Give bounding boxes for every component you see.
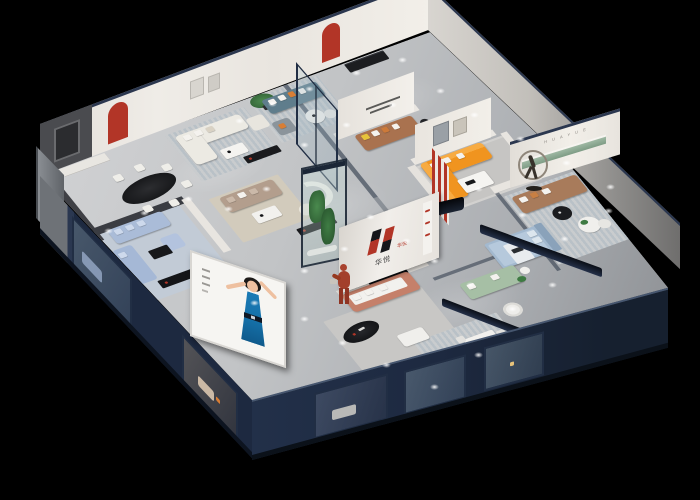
model-arm — [225, 281, 246, 289]
mannequin-leg — [345, 288, 349, 304]
door-mullion — [315, 86, 317, 166]
wall-frame — [208, 72, 220, 93]
ad-text-line — [202, 289, 208, 293]
wall-art — [453, 116, 467, 137]
window-sofa-hint — [332, 404, 356, 420]
mannequin-tray — [330, 279, 337, 284]
case-plant — [321, 207, 335, 246]
ad-text-line — [202, 275, 210, 280]
dining-chair — [112, 173, 125, 182]
brand-logo-mini: 华悦 — [397, 239, 407, 250]
ladder-shelf — [423, 200, 432, 255]
terracotta-mannequin — [330, 264, 356, 306]
model-arm — [259, 280, 278, 299]
mannequin-leg — [339, 288, 343, 304]
wall-frame — [190, 76, 204, 99]
ad-text-line — [202, 268, 210, 273]
bronze-runner-sculpture — [518, 146, 548, 192]
ad-text-line — [202, 282, 210, 287]
mannequin-head — [340, 264, 347, 271]
wall-art — [54, 119, 80, 163]
sculpture-base — [526, 186, 542, 191]
dining-chair — [133, 163, 146, 172]
red-arch-niche — [108, 99, 128, 145]
showroom-render: H U A Y U E 华悦 华悦 — [0, 0, 700, 500]
red-arch-niche — [322, 20, 340, 63]
case-pebbles — [307, 244, 337, 256]
wall-art — [433, 121, 449, 147]
